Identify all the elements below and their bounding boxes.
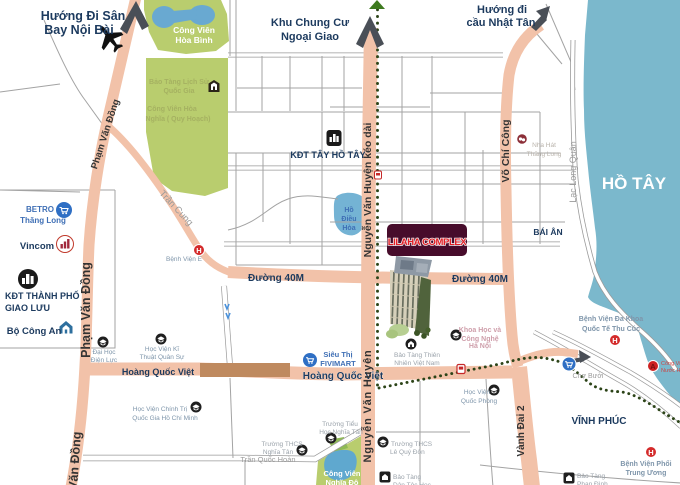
svg-text:H: H [612,336,617,345]
svg-text:Nguyễn Văn Huyện kéo dài: Nguyễn Văn Huyện kéo dài [361,123,374,258]
svg-text:Chợ Bưởi: Chợ Bưởi [573,372,604,380]
svg-text:Nha Hát: Nha Hát [532,142,556,149]
svg-text:KĐT THÀNH PHỐ: KĐT THÀNH PHỐ [5,290,80,301]
svg-text:Nhiên Việt Nam: Nhiên Việt Nam [394,360,439,367]
svg-text:Học Nghĩa Tân: Học Nghĩa Tân [319,429,363,436]
svg-text:Nước Hồ Tây: Nước Hồ Tây [661,368,680,374]
svg-text:Học Viện Kĩ: Học Viện Kĩ [145,346,180,353]
svg-text:Thăng Long: Thăng Long [527,151,562,158]
svg-text:Bệnh Viện E: Bệnh Viện E [166,256,203,263]
svg-text:Quốc Phòng: Quốc Phòng [461,396,498,405]
svg-text:Khoa Học và: Khoa Học và [459,327,502,334]
svg-text:Ngoại Giao: Ngoại Giao [281,31,339,43]
svg-text:Hòa: Hòa [342,225,355,232]
svg-text:Bảo Tàng: Bảo Tàng [577,473,605,480]
svg-text:Hoàng Quốc Việt: Hoàng Quốc Việt [122,367,194,377]
svg-text:Điều: Điều [341,214,356,223]
svg-text:GIAO LƯU: GIAO LƯU [5,303,50,313]
svg-text:Nguyễn Văn Huyên: Nguyễn Văn Huyên [361,349,374,462]
svg-text:H: H [648,448,653,457]
svg-text:Đại Học: Đại Học [92,349,116,356]
svg-text:Đường 40M: Đường 40M [248,273,304,284]
svg-text:HỒ TÂY: HỒ TÂY [602,174,667,193]
svg-text:Học Viện Chính Trị: Học Viện Chính Trị [133,406,187,413]
svg-text:Thăng Long: Thăng Long [20,216,66,225]
svg-text:Đường 40M: Đường 40M [452,274,508,285]
svg-text:Hồ: Hồ [344,205,353,214]
svg-text:Hướng đi: Hướng đi [477,4,527,16]
svg-text:Hà Nội: Hà Nội [469,343,491,350]
svg-text:Trường THCS: Trường THCS [391,441,433,448]
svg-text:Học Viện: Học Viện [464,389,491,396]
svg-text:Vành Đai 2: Vành Đai 2 [516,405,527,457]
svg-text:Bảo Tàng: Bảo Tàng [393,474,421,481]
svg-text:Phạm Văn Đồng: Phạm Văn Đồng [79,262,93,358]
svg-text:FIVIMART: FIVIMART [320,359,356,368]
svg-text:A: A [650,362,656,371]
svg-text:Bệnh Viện Phổi: Bệnh Viện Phổi [620,460,671,468]
svg-text:Trường Tiểu: Trường Tiểu [322,420,358,428]
svg-text:cầu Nhật Tân: cầu Nhật Tân [466,17,535,29]
svg-text:Công Nghệ: Công Nghệ [461,336,498,343]
svg-text:Phan Đình: Phan Đình [577,481,608,485]
svg-text:Bộ Công An: Bộ Công An [7,326,62,337]
svg-text:BETRO: BETRO [26,205,54,214]
svg-text:Bảo Tàng Lịch Sử: Bảo Tàng Lịch Sử [149,79,210,86]
svg-text:Bệnh Viện Đa Khoa: Bệnh Viện Đa Khoa [579,316,644,323]
svg-text:Vincom: Vincom [20,241,54,252]
svg-text:Lê Quý Đôn: Lê Quý Đôn [390,449,425,456]
svg-text:Quốc Gia Hồ Chí Minh: Quốc Gia Hồ Chí Minh [132,413,198,422]
svg-text:H: H [196,246,201,255]
svg-text:BÁI ÂN: BÁI ÂN [533,226,562,237]
svg-text:Siêu Thị: Siêu Thị [323,350,352,359]
svg-text:Lạc Long Quân: Lạc Long Quân [568,141,578,203]
svg-text:Công Viên: Công Viên [173,25,215,35]
svg-text:Công Viên: Công Viên [324,469,361,478]
svg-text:Công Viên Hòa: Công Viên Hòa [147,106,197,113]
svg-text:Quốc Gia: Quốc Gia [163,87,194,95]
svg-text:VĨNH PHÚC: VĨNH PHÚC [571,414,626,427]
svg-text:Khu Chung Cư: Khu Chung Cư [271,17,349,29]
svg-text:Trường THCS: Trường THCS [261,441,303,448]
svg-text:Công Viên: Công Viên [661,361,680,367]
svg-text:Bay Nội Bài: Bay Nội Bài [44,23,113,37]
svg-text:Nghĩa Tân: Nghĩa Tân [263,449,294,456]
svg-text:Trung Ương: Trung Ương [626,470,667,477]
svg-text:Thuật Quân Sự: Thuật Quân Sự [140,354,185,361]
svg-text:Nghĩa Đô: Nghĩa Đô [326,478,359,485]
svg-text:Bảo Tàng Thiên: Bảo Tàng Thiên [394,352,440,359]
svg-text:Trần Quốc Hoàn: Trần Quốc Hoàn [240,455,295,464]
svg-text:Nghĩa ( Quy Hoạch): Nghĩa ( Quy Hoạch) [146,116,211,123]
svg-text:Điện Lực: Điện Lực [91,357,118,364]
svg-text:LILAHA COMPLEX: LILAHA COMPLEX [388,237,468,248]
svg-text:Quốc Tế Thu Cúc: Quốc Tế Thu Cúc [582,325,640,333]
svg-text:Hướng Đi Sân: Hướng Đi Sân [41,9,126,23]
svg-text:Võ Chí Công: Võ Chí Công [500,120,512,183]
svg-text:KĐT TÂY HỒ TÂY: KĐT TÂY HỒ TÂY [290,149,365,160]
svg-text:Hòa Bình: Hòa Bình [175,35,212,45]
